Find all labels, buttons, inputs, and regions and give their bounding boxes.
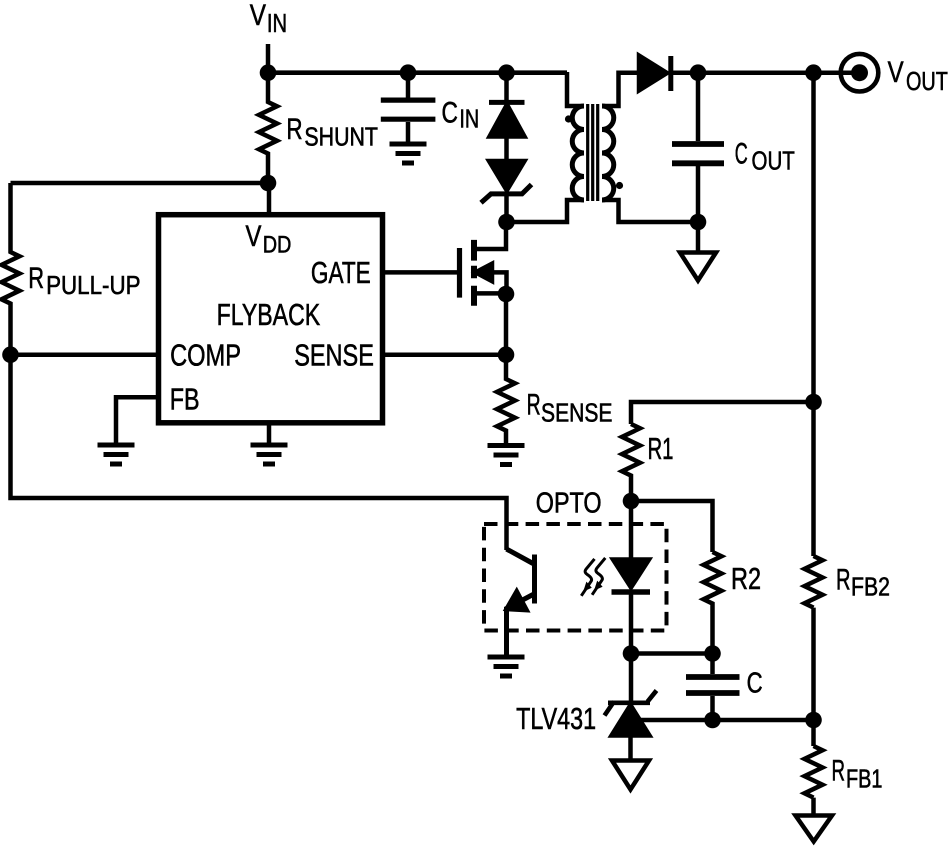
svg-text:R: R [832,755,846,788]
svg-text:R: R [286,113,302,146]
svg-text:R: R [28,262,44,295]
svg-text:FB: FB [170,382,200,417]
svg-text:FB1: FB1 [846,764,883,794]
svg-text:V: V [246,220,262,253]
svg-text:C: C [735,137,748,170]
svg-text:C: C [747,668,763,700]
svg-text:DD: DD [263,231,292,258]
svg-text:OUT: OUT [906,66,948,96]
svg-text:R1: R1 [648,431,674,466]
svg-text:TLV431: TLV431 [516,701,596,736]
svg-text:COMP: COMP [170,337,241,372]
svg-text:SENSE: SENSE [541,398,613,428]
svg-text:R: R [527,388,541,421]
svg-text:IN: IN [459,104,479,134]
svg-text:SENSE: SENSE [294,337,374,372]
svg-text:OPTO: OPTO [536,487,602,519]
svg-text:FLYBACK: FLYBACK [217,297,321,332]
svg-text:C: C [442,96,458,129]
svg-text:GATE: GATE [311,255,371,290]
svg-text:V: V [250,0,266,32]
svg-text:SHUNT: SHUNT [304,122,378,152]
svg-text:R: R [836,564,851,597]
svg-text:V: V [888,56,904,89]
svg-text:IN: IN [267,8,287,38]
svg-text:R2: R2 [731,561,761,596]
svg-text:FB2: FB2 [851,572,890,602]
svg-text:OUT: OUT [752,146,795,176]
svg-text:PULL-UP: PULL-UP [46,270,141,300]
